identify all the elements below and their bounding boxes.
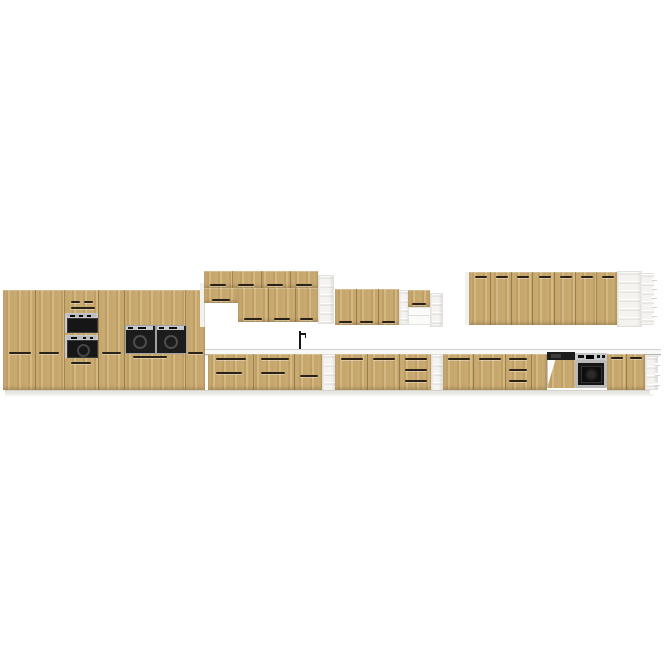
door-gap bbox=[490, 272, 491, 325]
handle-slot bbox=[216, 372, 242, 374]
door-gap bbox=[367, 354, 368, 390]
display bbox=[159, 327, 164, 329]
handle-slot bbox=[212, 299, 230, 301]
button bbox=[87, 315, 91, 317]
open-shelf-column bbox=[431, 354, 443, 392]
open-shelf-column bbox=[322, 354, 336, 392]
display bbox=[128, 327, 133, 329]
door-gap bbox=[290, 271, 291, 288]
handle-slot bbox=[560, 276, 572, 278]
base-cabinet-right bbox=[607, 354, 645, 390]
door-gap bbox=[295, 288, 296, 322]
door-gap bbox=[531, 354, 532, 390]
handle-slot bbox=[274, 318, 290, 320]
handle-slot bbox=[71, 362, 91, 364]
handle-slot bbox=[405, 358, 427, 360]
door-gap bbox=[378, 289, 379, 325]
handle-slot bbox=[267, 284, 283, 286]
shelf-edge bbox=[655, 373, 660, 375]
wall-cabinet-group-left bbox=[238, 288, 318, 322]
wall-cabinet-run-right bbox=[469, 272, 617, 325]
handle-slot bbox=[71, 301, 80, 303]
handle-slot bbox=[39, 352, 59, 354]
oven-glass-door bbox=[67, 340, 98, 358]
door-gap bbox=[399, 354, 400, 390]
built-in-microwave bbox=[65, 313, 98, 333]
shelf-edge bbox=[652, 314, 657, 316]
wall-cabinet-group-middle bbox=[335, 289, 399, 325]
handle-slot bbox=[448, 358, 470, 360]
handle-slot bbox=[188, 352, 203, 354]
handle-slot bbox=[581, 276, 593, 278]
wall-top-box-row bbox=[204, 271, 318, 288]
control-strip bbox=[157, 326, 184, 330]
knob bbox=[83, 337, 86, 339]
door-gap bbox=[232, 271, 233, 288]
handle-slot bbox=[238, 284, 254, 286]
handle-slot bbox=[412, 303, 426, 305]
compact-appliance-left bbox=[125, 325, 156, 354]
display bbox=[586, 355, 594, 359]
door-gap bbox=[626, 354, 627, 390]
door-gap bbox=[98, 290, 99, 390]
handle-slot bbox=[133, 356, 167, 358]
handle-slot bbox=[84, 301, 93, 303]
handle-slot bbox=[373, 358, 395, 360]
dishwasher bbox=[547, 352, 575, 390]
round-window bbox=[164, 335, 178, 349]
handle-slot bbox=[339, 321, 352, 323]
knob bbox=[578, 355, 584, 358]
display bbox=[71, 337, 77, 339]
display bbox=[138, 327, 146, 329]
shelf-edge bbox=[652, 305, 657, 307]
door-gap bbox=[532, 272, 533, 325]
handle-slot bbox=[479, 358, 501, 360]
shelf-edge bbox=[652, 296, 657, 298]
knob bbox=[90, 337, 93, 339]
double-appliance-unit bbox=[125, 325, 185, 352]
door-gap bbox=[511, 272, 512, 325]
handle-slot bbox=[341, 358, 363, 360]
faucet-spout-tip bbox=[305, 335, 306, 338]
oven-glass-door bbox=[578, 363, 604, 385]
display bbox=[169, 327, 177, 329]
dishwasher-open-door bbox=[547, 360, 575, 388]
handle-slot bbox=[360, 321, 373, 323]
shelf-board bbox=[409, 315, 429, 316]
handle-slot bbox=[216, 358, 246, 360]
handle-slot bbox=[602, 276, 614, 278]
base-drawer-group-1 bbox=[208, 354, 322, 390]
handle-slot bbox=[244, 318, 262, 320]
handle-slot bbox=[71, 307, 95, 309]
small-wall-cabinet bbox=[408, 290, 430, 307]
handle-slot bbox=[300, 375, 318, 377]
door-gap bbox=[35, 290, 36, 390]
short-wall-cabinet bbox=[204, 288, 238, 303]
oven-window bbox=[581, 366, 602, 383]
open-shelf-column bbox=[318, 275, 334, 324]
ground-shadow bbox=[5, 394, 653, 396]
door-gap bbox=[294, 354, 295, 390]
door-gap bbox=[596, 272, 597, 325]
oven-window-reflection bbox=[77, 344, 90, 357]
door-gap bbox=[268, 288, 269, 322]
handle-slot bbox=[509, 369, 527, 371]
handle-slot bbox=[9, 352, 31, 354]
open-shelf-column bbox=[430, 293, 443, 327]
handle-slot bbox=[517, 276, 529, 278]
kitchen-set-render bbox=[0, 0, 665, 665]
handle-slot bbox=[261, 372, 285, 374]
handle-slot bbox=[405, 380, 427, 382]
oven-frame bbox=[575, 360, 607, 388]
base-drawer-group-2 bbox=[335, 354, 431, 390]
display bbox=[551, 354, 561, 358]
door-gap bbox=[473, 354, 474, 390]
tall-cabinet-run bbox=[3, 290, 205, 390]
built-in-oven-upper bbox=[65, 335, 98, 358]
handle-slot bbox=[382, 321, 395, 323]
handle-slot bbox=[509, 380, 527, 382]
door-gap bbox=[575, 272, 576, 325]
microwave-control-strip bbox=[67, 314, 96, 317]
handle-slot bbox=[210, 284, 226, 286]
faucet bbox=[296, 330, 308, 351]
shelf-edge bbox=[655, 363, 660, 365]
round-window bbox=[133, 335, 147, 349]
open-shelf-unit-back bbox=[640, 273, 654, 325]
dishwasher-control-panel bbox=[547, 352, 575, 360]
dishwasher-side-trim bbox=[547, 360, 548, 388]
oven-control-strip bbox=[67, 336, 96, 339]
handle-slot bbox=[630, 357, 642, 359]
handle-slot bbox=[475, 276, 487, 278]
microwave-glass-door bbox=[67, 318, 98, 333]
shelf-edge bbox=[655, 383, 660, 385]
knob bbox=[602, 355, 605, 358]
handle-slot bbox=[102, 352, 121, 354]
door-gap bbox=[505, 354, 506, 390]
door-gap bbox=[253, 354, 254, 390]
handle-slot bbox=[405, 369, 427, 371]
handle-slot bbox=[509, 358, 527, 360]
handle-slot bbox=[496, 276, 508, 278]
compact-appliance-right bbox=[156, 325, 187, 354]
built-in-oven-base bbox=[575, 352, 607, 390]
handle-slot bbox=[611, 357, 623, 359]
handle-slot bbox=[539, 276, 551, 278]
base-drawer-group-3 bbox=[443, 354, 547, 390]
door-gap bbox=[356, 289, 357, 325]
display bbox=[70, 315, 75, 317]
door-gap bbox=[261, 271, 262, 288]
open-end-shelf bbox=[645, 356, 658, 390]
door-gap bbox=[554, 272, 555, 325]
handle-slot bbox=[261, 358, 289, 360]
open-compartment bbox=[408, 307, 432, 325]
oven-control-strip bbox=[575, 353, 607, 360]
shelf-edge bbox=[652, 278, 657, 280]
button bbox=[79, 315, 83, 317]
control-strip bbox=[126, 326, 153, 330]
shelf-edge bbox=[652, 287, 657, 289]
handle-slot bbox=[300, 318, 313, 320]
handle-slot bbox=[296, 284, 312, 286]
knob bbox=[597, 355, 600, 358]
open-shelf-unit bbox=[617, 271, 642, 327]
